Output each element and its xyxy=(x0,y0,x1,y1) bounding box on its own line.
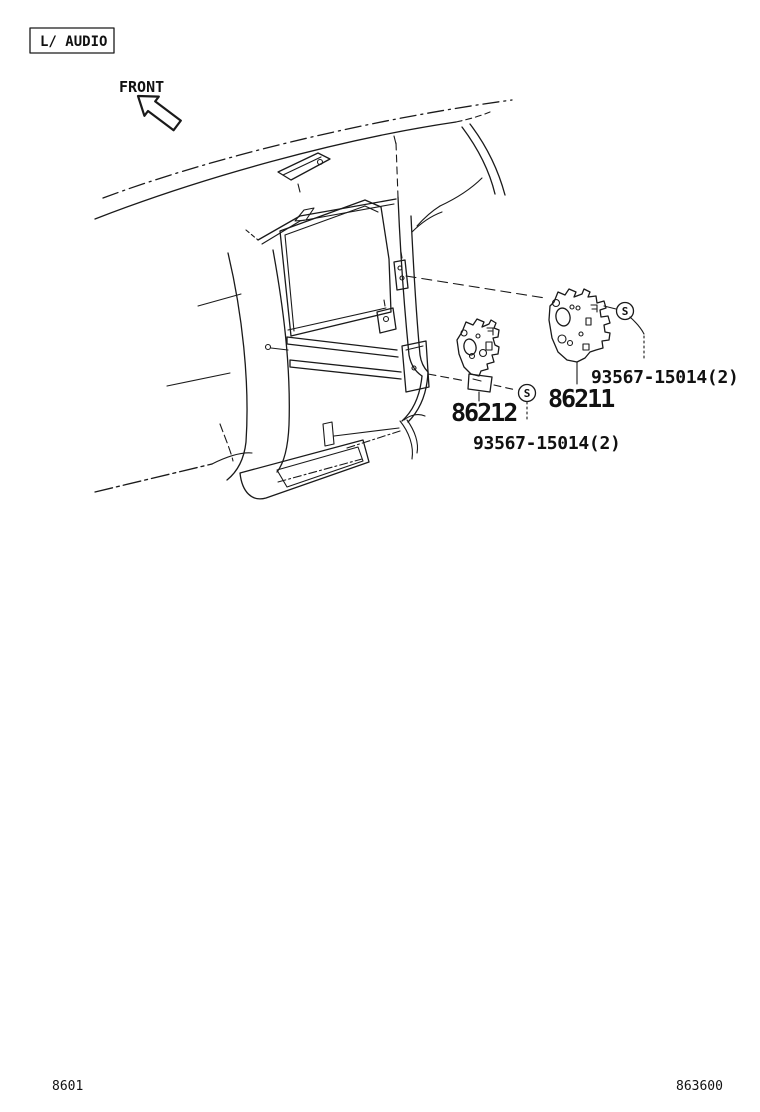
part-number-86211: 86211 xyxy=(548,384,614,413)
screw-symbol-86211: S xyxy=(604,303,644,362)
page-code: 8601 xyxy=(52,1079,83,1094)
category-label-box: L/ AUDIO xyxy=(30,28,114,53)
leader-to-86212 xyxy=(428,374,466,381)
front-label: FRONT xyxy=(119,78,164,96)
screw-label-86212: 93567-15014(2) xyxy=(473,433,621,454)
category-label: L/ AUDIO xyxy=(40,34,107,50)
bracket-86212-drawing xyxy=(457,319,499,401)
instrument-panel-drawing xyxy=(95,100,512,499)
audio-bracket-diagram: L/ AUDIO FRONT xyxy=(0,0,760,1112)
parts-catalog-page: L/ AUDIO FRONT xyxy=(0,0,760,1112)
panel-mount-tab-lower xyxy=(377,300,396,333)
front-direction: FRONT xyxy=(119,78,181,130)
screw-symbol-86212: S xyxy=(519,385,536,420)
front-arrow-icon xyxy=(138,96,181,130)
part-number-86212: 86212 xyxy=(451,398,516,427)
screw-symbol-86212-letter: S xyxy=(524,387,531,400)
screw-point-marker xyxy=(266,345,271,350)
screw-symbol-86211-letter: S xyxy=(622,305,629,318)
leader-86212-to-screw xyxy=(494,385,516,390)
leader-to-86211 xyxy=(406,276,545,298)
figure-code: 863600 xyxy=(676,1079,723,1094)
